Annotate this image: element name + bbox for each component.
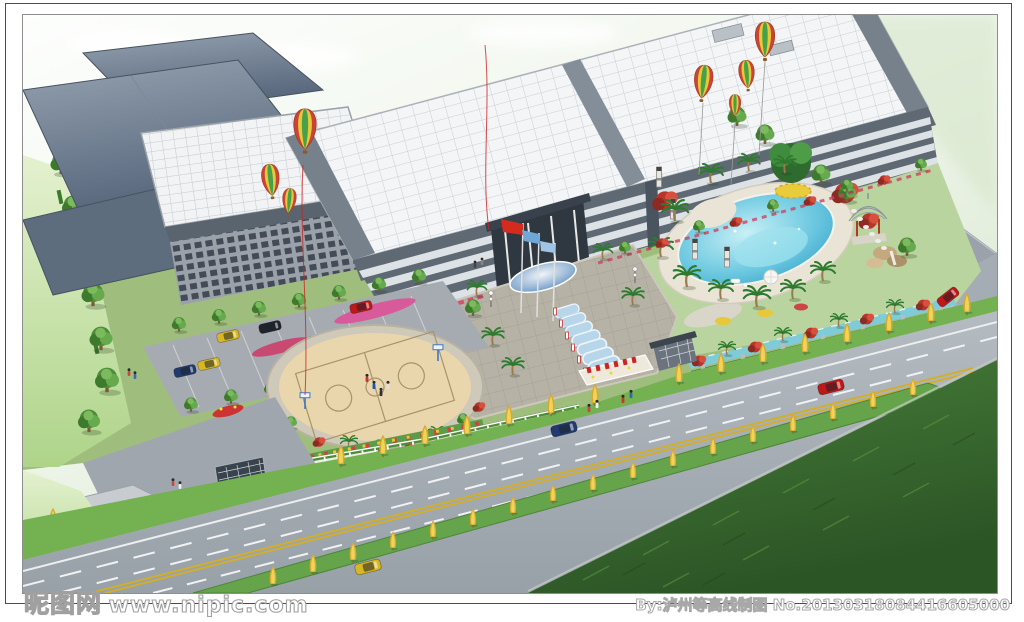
architectural-rendering xyxy=(22,14,998,594)
watermark-site-name: 昵图网 xyxy=(24,589,102,618)
watermark-nipic: 昵图网 www.nipic.com xyxy=(24,584,309,620)
big-garden-tree xyxy=(769,142,812,198)
watermark-credit: By:泸州等高线制图 No.20130318084416605000 xyxy=(635,594,1010,615)
page-canvas: 昵图网 www.nipic.com By:泸州等高线制图 No.20130318… xyxy=(0,0,1024,622)
cloud xyxy=(468,20,618,46)
watermark-site-url: www.nipic.com xyxy=(109,593,309,618)
